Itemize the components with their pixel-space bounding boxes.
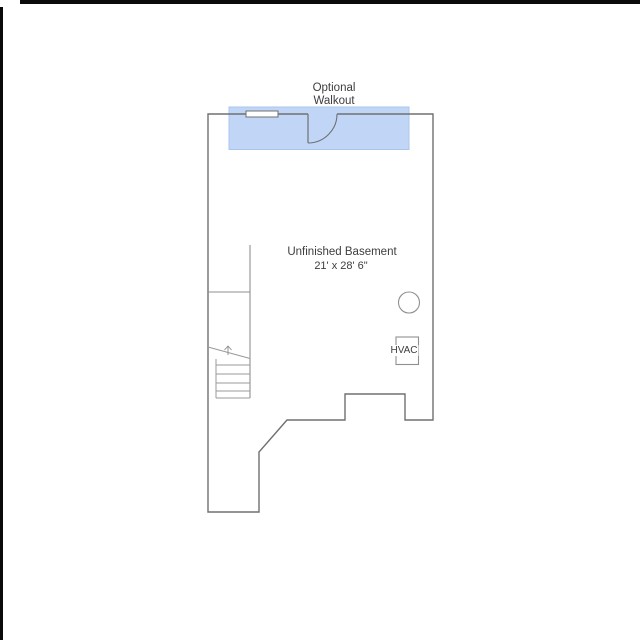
room-name-label: Unfinished Basement [287, 246, 396, 258]
walkout-label: Optional Walkout [313, 82, 356, 108]
walkout-window [246, 111, 278, 117]
hvac-label: HVAC [389, 345, 418, 356]
walkout-label-line1: Optional [313, 82, 356, 95]
room-dimensions-label: 21' x 28' 6" [314, 260, 367, 272]
basement-outline [208, 114, 433, 512]
walkout-label-line2: Walkout [313, 95, 356, 108]
utility-circle [399, 292, 420, 313]
floorplan-page: Optional Walkout Unfinished Basement 21'… [0, 0, 640, 640]
stair-break-line [208, 347, 250, 359]
staircase [208, 346, 250, 398]
